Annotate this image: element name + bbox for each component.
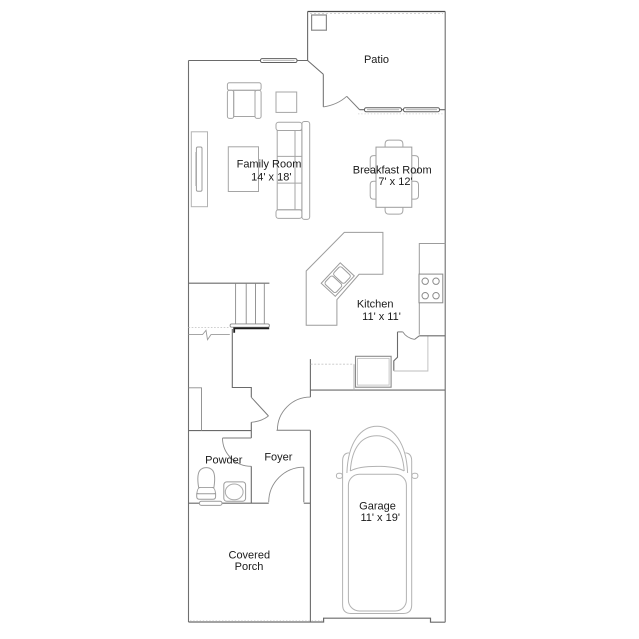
svg-text:7' x 12': 7' x 12' [378, 176, 412, 188]
svg-text:11' x 19': 11' x 19' [360, 512, 399, 524]
svg-text:Kitchen: Kitchen [357, 299, 394, 311]
svg-text:Foyer: Foyer [264, 451, 292, 463]
svg-text:11' x 11': 11' x 11' [362, 311, 401, 323]
svg-text:14' x 18': 14' x 18' [251, 171, 291, 183]
svg-text:Garage: Garage [359, 500, 396, 512]
svg-text:Breakfast Room: Breakfast Room [353, 165, 432, 177]
svg-text:Powder: Powder [205, 455, 243, 467]
svg-text:Porch: Porch [235, 561, 264, 573]
svg-text:Covered: Covered [229, 550, 271, 562]
svg-text:Family Room: Family Room [237, 158, 302, 170]
svg-text:Patio: Patio [364, 54, 389, 66]
